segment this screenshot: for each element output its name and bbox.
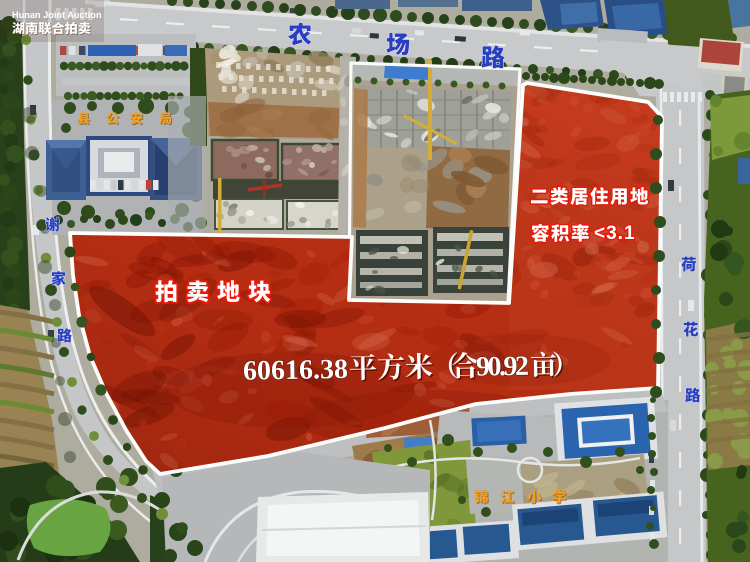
svg-text:<3.1: <3.1 <box>594 223 636 244</box>
svg-text:60616.38: 60616.38 <box>243 354 349 387</box>
svg-text:Hunan Joint Auction: Hunan Joint Auction <box>12 10 102 20</box>
svg-text:90.92: 90.92 <box>476 351 529 383</box>
